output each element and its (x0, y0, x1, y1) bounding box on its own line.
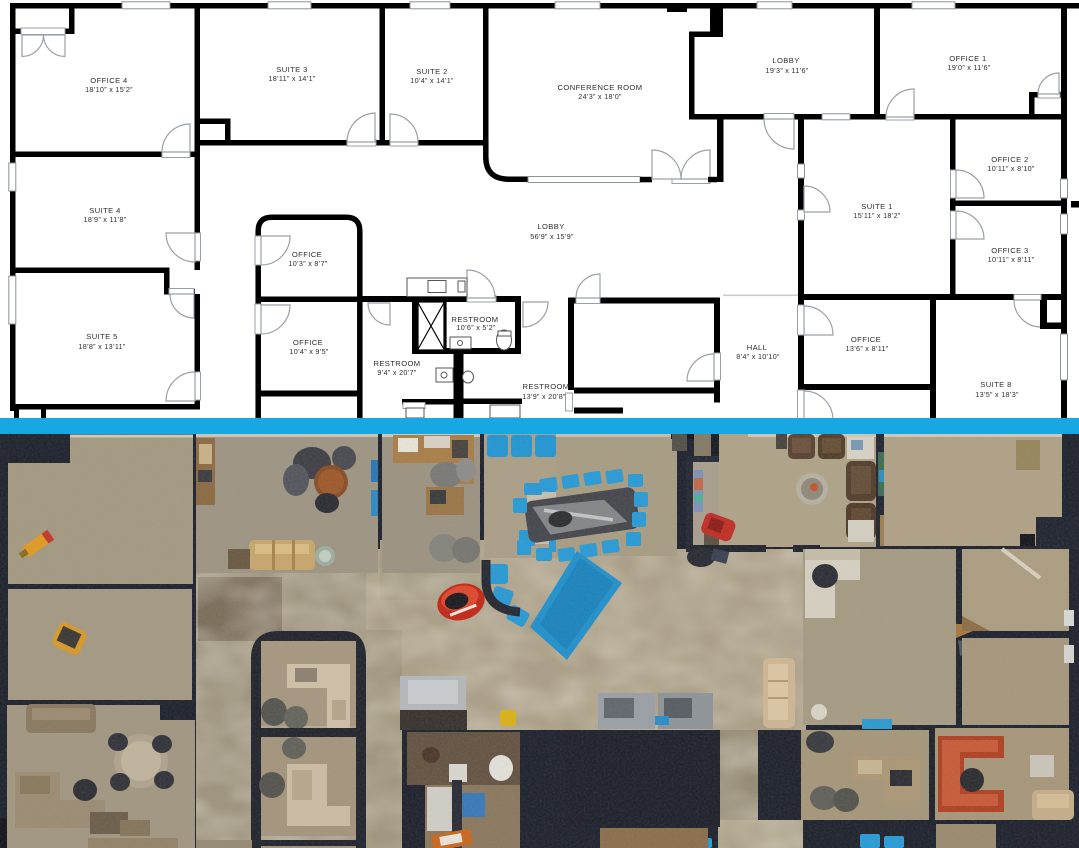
svg-text:LOBBY: LOBBY (537, 222, 564, 231)
svg-text:RESTROOM: RESTROOM (373, 359, 420, 368)
svg-text:10’11” x 8’10”: 10’11” x 8’10” (987, 164, 1035, 173)
svg-text:CONFERENCE ROOM: CONFERENCE ROOM (558, 83, 643, 92)
svg-text:OFFICE 2: OFFICE 2 (991, 155, 1028, 164)
svg-text:19’3” x 11’6”: 19’3” x 11’6” (766, 66, 809, 75)
svg-text:SUITE 1: SUITE 1 (861, 202, 893, 211)
svg-text:19’0” x 11’6”: 19’0” x 11’6” (948, 63, 991, 72)
svg-text:10’6” x 5’2”: 10’6” x 5’2” (456, 323, 495, 332)
svg-text:13’5” x 18’3”: 13’5” x 18’3” (975, 390, 1019, 399)
svg-text:10’11” x 8’11”: 10’11” x 8’11” (988, 255, 1035, 264)
svg-text:13’6” x 8’11”: 13’6” x 8’11” (846, 344, 889, 353)
svg-text:18’8” x 13’11”: 18’8” x 13’11” (78, 342, 126, 351)
svg-text:SUITE 3: SUITE 3 (276, 65, 308, 74)
svg-text:24’3” x 18’0”: 24’3” x 18’0” (578, 92, 622, 101)
svg-text:SUITE 8: SUITE 8 (980, 380, 1012, 389)
svg-text:OFFICE: OFFICE (293, 338, 323, 347)
svg-text:56’9” x 15’9”: 56’9” x 15’9” (530, 232, 574, 241)
svg-text:LOBBY: LOBBY (772, 56, 799, 65)
svg-text:15’11” x 18’2”: 15’11” x 18’2” (853, 211, 901, 220)
svg-text:18’9” x 11’8”: 18’9” x 11’8” (84, 215, 127, 224)
svg-text:OFFICE 1: OFFICE 1 (949, 54, 986, 63)
svg-text:8’4” x 10’10”: 8’4” x 10’10” (736, 352, 780, 361)
svg-text:OFFICE: OFFICE (851, 335, 881, 344)
svg-text:10’3” x 8’7”: 10’3” x 8’7” (288, 259, 327, 268)
svg-text:10’4” x 9’5”: 10’4” x 9’5” (289, 347, 328, 356)
svg-text:OFFICE: OFFICE (292, 250, 322, 259)
svg-text:RESTROOM: RESTROOM (522, 382, 569, 391)
svg-text:SUITE 4: SUITE 4 (89, 206, 121, 215)
svg-text:13’9” x 20’8”: 13’9” x 20’8” (522, 392, 566, 401)
svg-text:SUITE 5: SUITE 5 (86, 332, 118, 341)
svg-text:18’10” x 15’2”: 18’10” x 15’2” (85, 85, 133, 94)
svg-text:OFFICE 4: OFFICE 4 (90, 76, 127, 85)
svg-text:SUITE 2: SUITE 2 (416, 67, 448, 76)
svg-text:OFFICE 3: OFFICE 3 (991, 246, 1028, 255)
svg-text:9’4” x 20’7”: 9’4” x 20’7” (377, 368, 416, 377)
svg-text:HALL: HALL (747, 343, 768, 352)
svg-text:10’4” x 14’1”: 10’4” x 14’1” (410, 76, 454, 85)
svg-text:18’11” x 14’1”: 18’11” x 14’1” (268, 74, 316, 83)
